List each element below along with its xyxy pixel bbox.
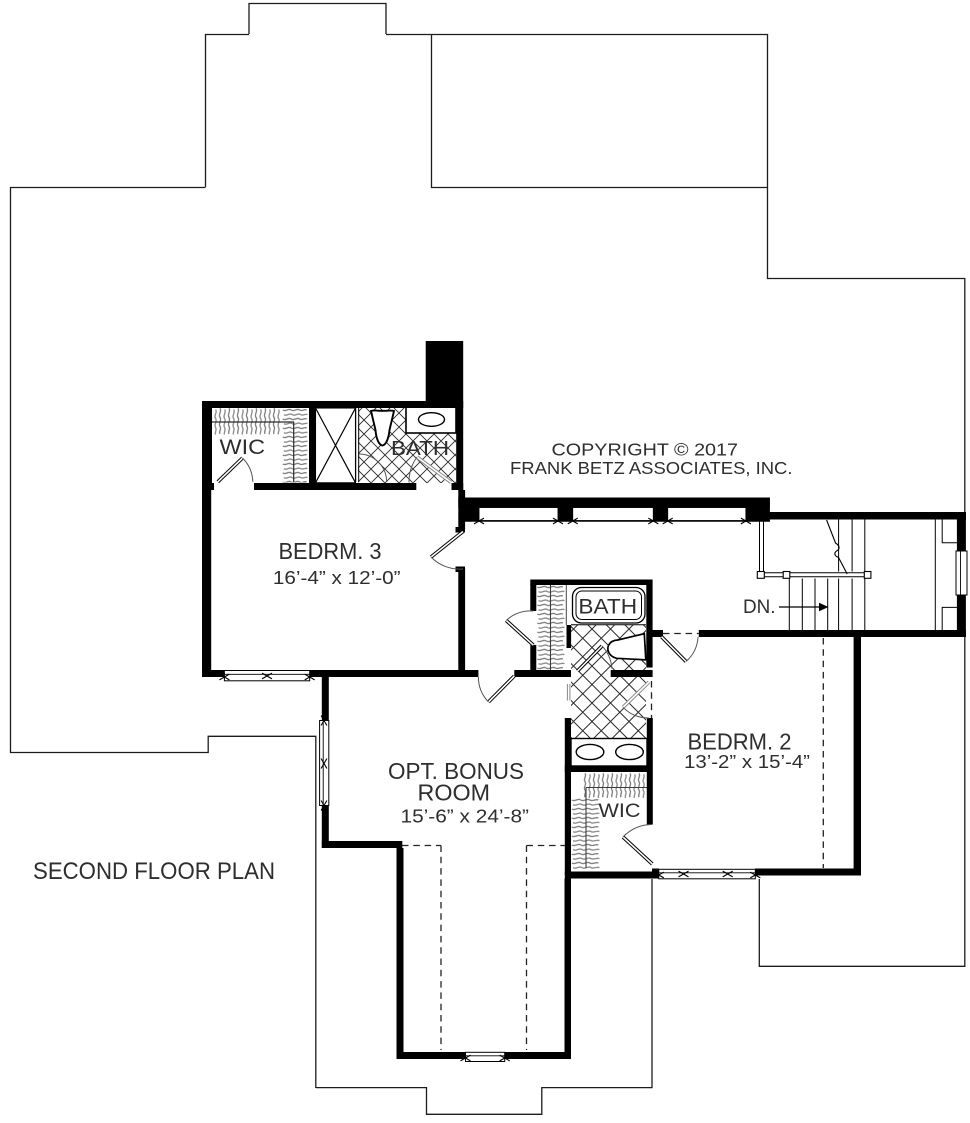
svg-text:SECOND FLOOR PLAN: SECOND FLOOR PLAN [33, 858, 275, 885]
svg-text:WIC: WIC [220, 436, 266, 459]
svg-text:16’-4” x 12’-0”: 16’-4” x 12’-0” [273, 567, 401, 588]
svg-text:BEDRM. 3: BEDRM. 3 [279, 538, 382, 564]
svg-text:ROOM: ROOM [418, 780, 491, 806]
svg-text:BATH: BATH [391, 438, 449, 460]
svg-text:DN.: DN. [743, 597, 776, 618]
svg-text:13’-2” x 15’-4”: 13’-2” x 15’-4” [684, 751, 810, 772]
svg-text:WIC: WIC [599, 801, 641, 822]
svg-text:COPYRIGHT © 2017: COPYRIGHT © 2017 [552, 440, 739, 460]
svg-text:FRANK BETZ ASSOCIATES, INC.: FRANK BETZ ASSOCIATES, INC. [510, 458, 793, 478]
svg-text:15’-6” x 24’-8”: 15’-6” x 24’-8” [401, 806, 530, 827]
svg-text:BATH: BATH [578, 595, 637, 619]
